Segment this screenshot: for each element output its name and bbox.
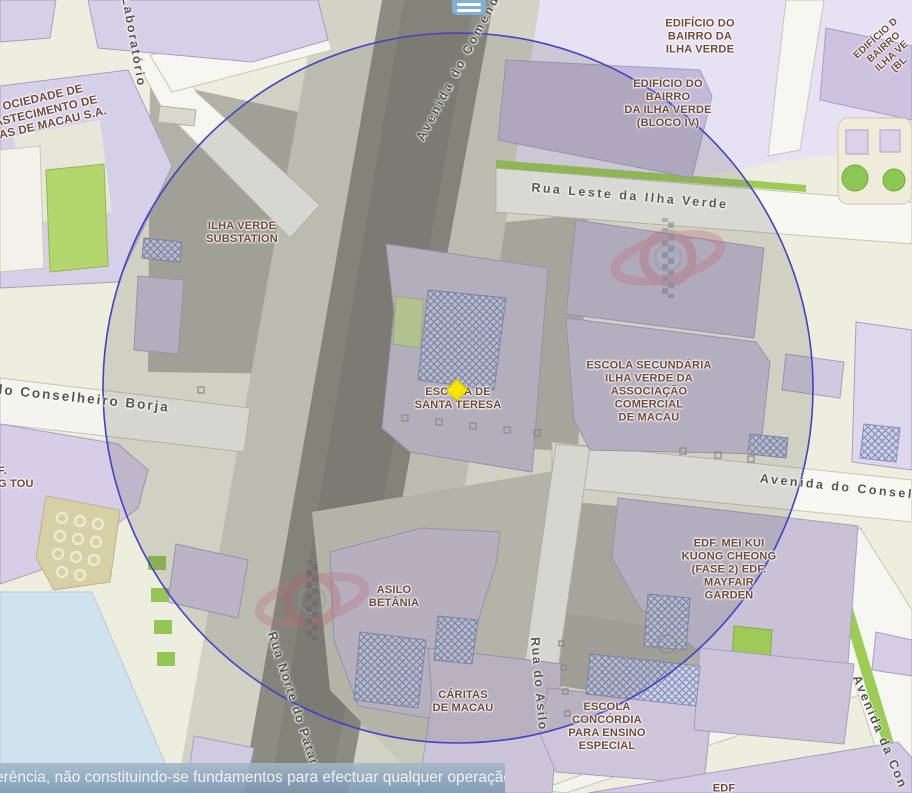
label-ilha-verde-substation: ILHA VERDESUBSTATION — [206, 220, 278, 246]
label-edf-mei-kui: EDF. MEI KUIKUONG CHEONG(FASE 2) EDF.MAY… — [682, 538, 777, 603]
label-edf-bottom: EDF — [713, 783, 736, 793]
hamburger-icon — [457, 9, 481, 12]
label-caritas: CÁRITASDE MACAU — [433, 689, 494, 715]
menu-button[interactable] — [452, 0, 486, 15]
disclaimer-text: erência, não constituindo-se fundamentos… — [0, 769, 505, 786]
map-viewport[interactable]: Laboratório Avenida do Comend Rua Leste … — [0, 0, 912, 793]
label-edificio-bloco-iv: EDIFÍCIO DOBAIRRODA ILHA VERDE(BLOCO IV) — [624, 78, 711, 130]
disclaimer-toast: erência, não constituindo-se fundamentos… — [0, 763, 505, 793]
hamburger-icon — [457, 3, 481, 6]
label-edificio-bairro: EDIFÍCIO DOBAIRRO DAILHA VERDE — [665, 18, 734, 57]
label-edf-tou: F.G TOU — [0, 465, 34, 491]
label-asilo-betania: ASILOBETÂNIA — [369, 584, 419, 610]
label-escola-secundaria: ESCOLA SECUNDÁRIAILHA VERDE DAASSOCIAÇÃO… — [586, 360, 711, 425]
label-escola-concordia: ESCOLACONCÓRDIAPARA ENSINOESPECIAL — [568, 701, 645, 753]
